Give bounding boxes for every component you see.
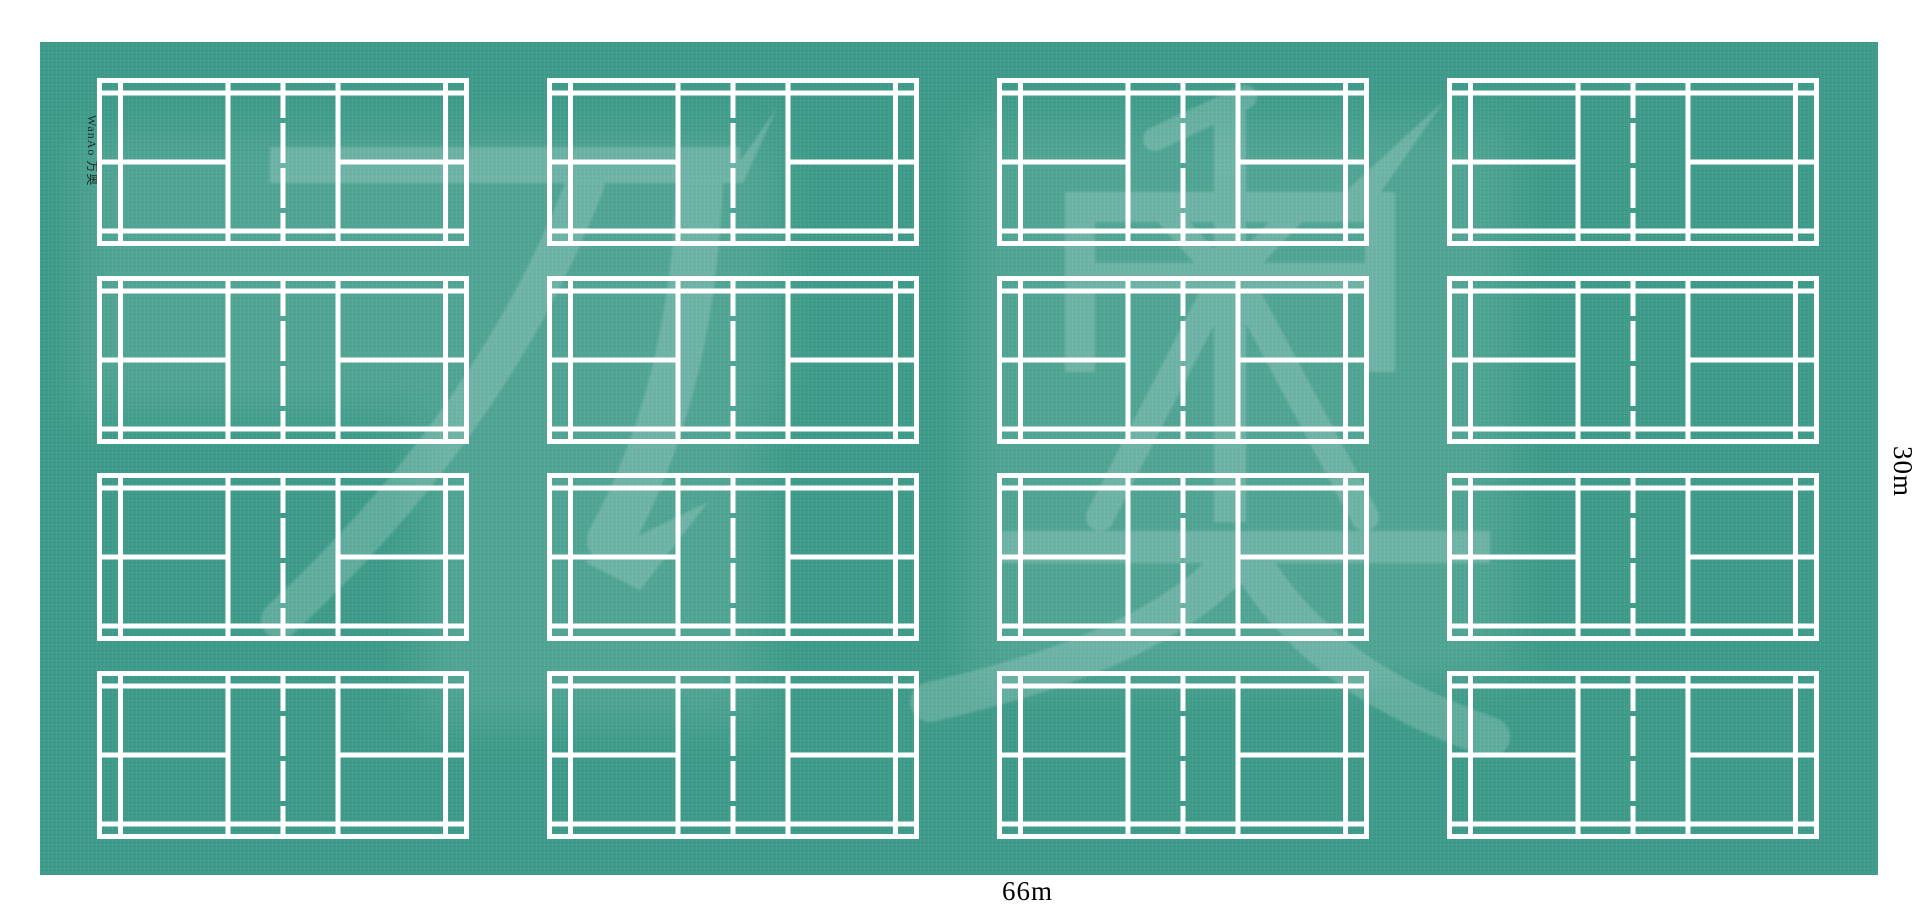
badminton-court (547, 473, 919, 641)
badminton-court (997, 276, 1369, 444)
badminton-court (997, 473, 1369, 641)
badminton-court (1447, 473, 1819, 641)
badminton-court (547, 671, 919, 839)
badminton-court (97, 276, 469, 444)
badminton-court (997, 671, 1369, 839)
badminton-court (1447, 671, 1819, 839)
floor-plan: 万奥 WanAo 万奥 (40, 42, 1878, 875)
badminton-court (997, 78, 1369, 246)
badminton-court (97, 671, 469, 839)
badminton-court (547, 78, 919, 246)
badminton-court (97, 78, 469, 246)
badminton-court (1447, 78, 1819, 246)
height-dimension-label: 30m (1889, 446, 1916, 497)
badminton-court (1447, 276, 1819, 444)
badminton-court (97, 473, 469, 641)
badminton-court (547, 276, 919, 444)
width-dimension-label: 66m (1002, 878, 1053, 905)
page: { "page": { "type": "badminton court flo… (0, 0, 1920, 918)
